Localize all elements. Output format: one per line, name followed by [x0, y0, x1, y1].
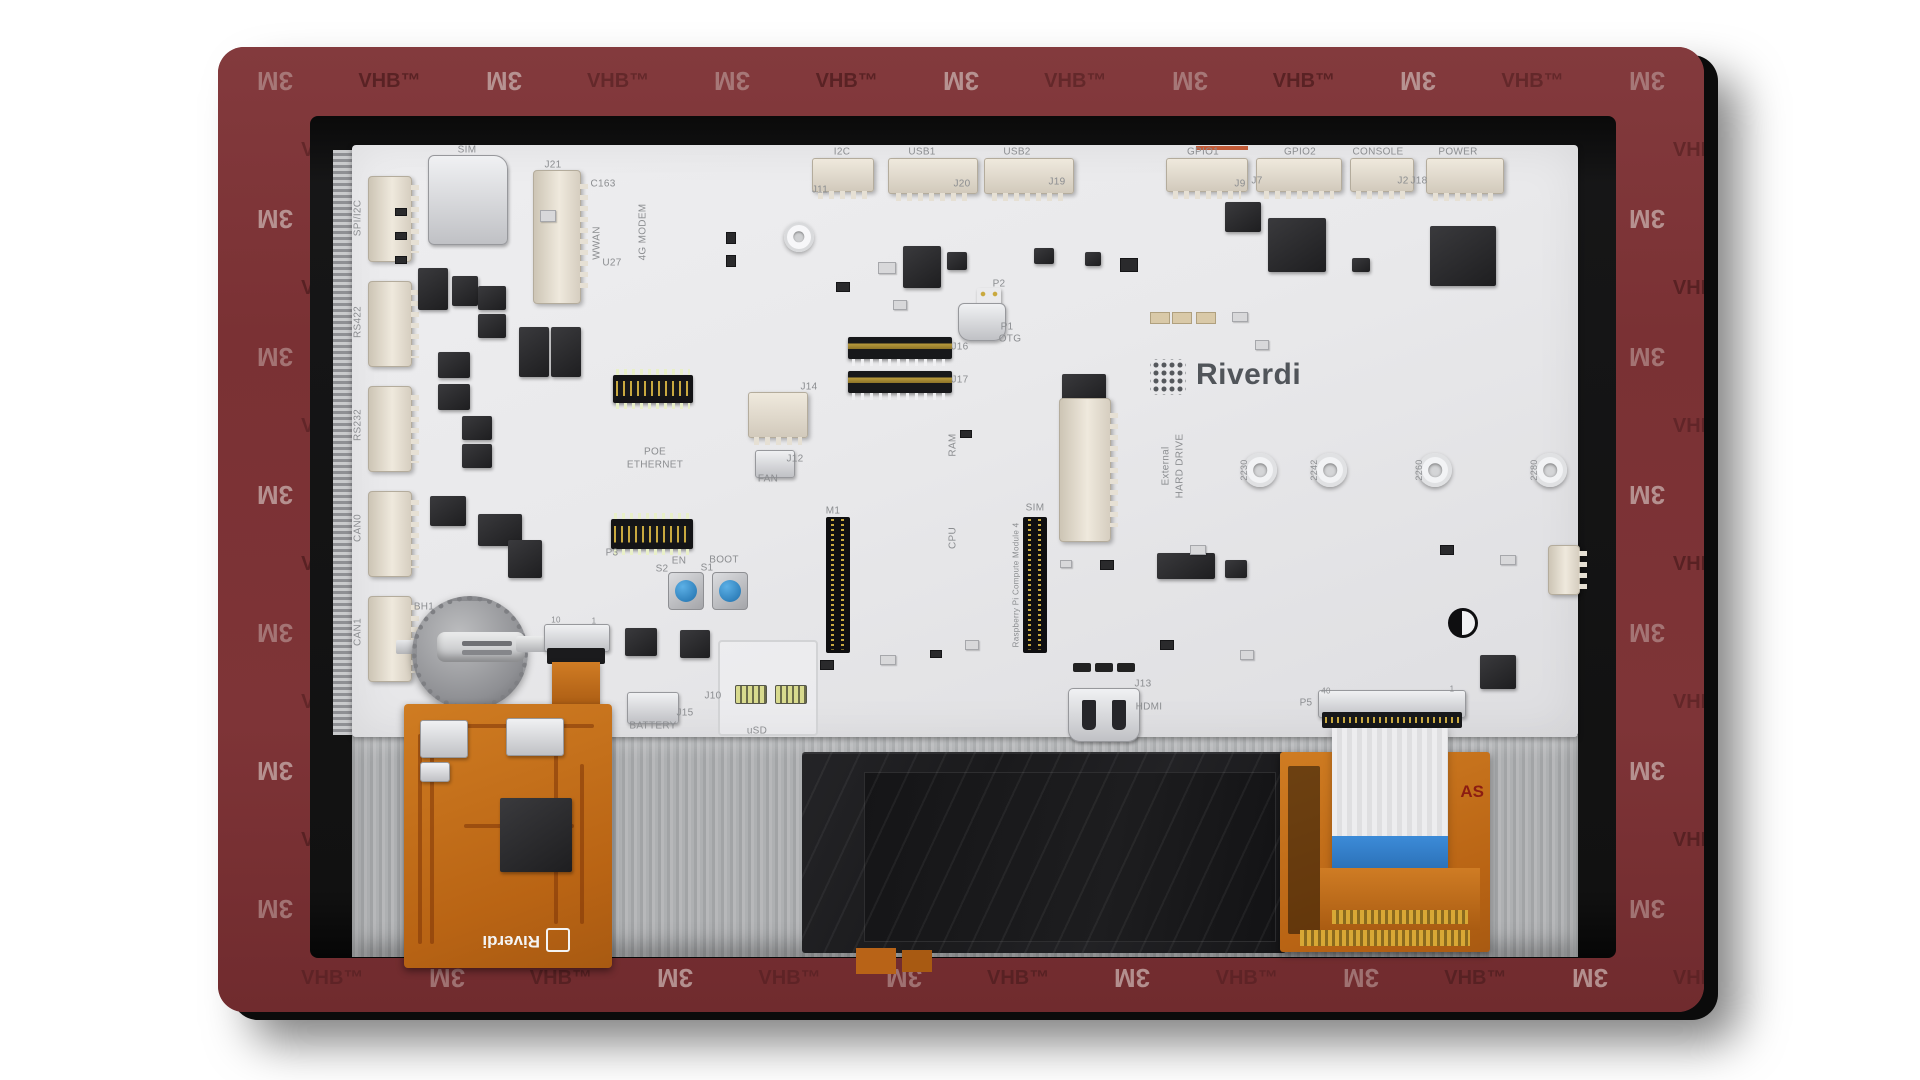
- silkscreen-label: HARD DRIVE: [1175, 434, 1186, 499]
- flex-riverdi-logo-text: Riverdi: [482, 931, 540, 951]
- flex-connector: [420, 720, 468, 758]
- silkscreen-label: 2242: [1310, 459, 1320, 480]
- silkscreen-label: CONSOLE: [1352, 147, 1403, 158]
- gold-finger-contacts: [1300, 930, 1470, 946]
- silkscreen-label: RAM: [948, 433, 959, 456]
- flex-marking-text: AS: [1460, 782, 1484, 802]
- silkscreen-label: C163: [590, 179, 615, 190]
- silkscreen-label: ETHERNET: [627, 460, 683, 471]
- silkscreen-label: 10: [551, 617, 561, 626]
- flex-tab: [856, 948, 896, 974]
- silkscreen-label: POWER: [1438, 147, 1477, 158]
- silkscreen-label: USB1: [908, 147, 935, 158]
- display-back-tape: [802, 752, 1286, 953]
- silkscreen-label: uSD: [747, 726, 767, 737]
- silkscreen-label: 40: [1321, 688, 1331, 697]
- silkscreen-label: RS232: [353, 409, 364, 441]
- silkscreen-label: J19: [1048, 177, 1065, 188]
- silkscreen-label: I2C: [834, 147, 850, 158]
- silkscreen-label: J15: [676, 708, 693, 719]
- silkscreen-label: J20: [953, 179, 970, 190]
- silkscreen-label: J16: [951, 342, 968, 353]
- ribbon-flex-end: [1320, 868, 1480, 930]
- silkscreen-label: Raspberry Pi Compute Module 4: [1013, 523, 1022, 648]
- tape-wrinkles: [802, 752, 1286, 953]
- silkscreen-label: 1: [1450, 686, 1455, 695]
- silkscreen-label: CPU: [948, 527, 959, 549]
- ribbon-gold-fingers: [1332, 910, 1468, 924]
- silkscreen-label: GPIO1: [1187, 147, 1219, 158]
- silkscreen-label: OTG: [999, 334, 1022, 345]
- silkscreen-label: J12: [786, 454, 803, 465]
- display-module-device: 3MVHB™3MVHB™3MVHB™3MVHB™3MVHB™3MVHB™3MVH…: [218, 47, 1704, 1012]
- silkscreen-label: BH1: [414, 602, 434, 613]
- silkscreen-label: J10: [704, 691, 721, 702]
- silkscreen-label: J17: [951, 375, 968, 386]
- silkscreen-label: GPIO2: [1284, 147, 1316, 158]
- silkscreen-label: 4G MODEM: [638, 204, 649, 261]
- silkscreen-label: M1: [826, 506, 841, 517]
- flex-riverdi-logo: Riverdi: [440, 922, 570, 954]
- silkscreen-label: J21: [544, 160, 561, 171]
- silkscreen-label: S1: [701, 563, 714, 574]
- device-inner: Riverdi: [0, 0, 1920, 1080]
- silkscreen-label: S2: [656, 564, 669, 575]
- silkscreen-label: J13: [1134, 679, 1151, 690]
- flex-tab: [902, 950, 932, 972]
- silkscreen-label: BATTERY: [629, 721, 676, 732]
- silkscreen-label: External: [1161, 446, 1172, 485]
- silkscreen-label: P3: [606, 548, 619, 559]
- silkscreen-label: CAN1: [353, 618, 364, 646]
- flex-shadow-area: [1288, 766, 1320, 934]
- silkscreen-label: J18: [1410, 176, 1427, 187]
- silkscreen-label: J14: [800, 382, 817, 393]
- touch-controller-chip: [500, 798, 572, 872]
- silkscreen-label: USB2: [1003, 147, 1030, 158]
- silkscreen-label: J7: [1251, 176, 1262, 187]
- touch-controller-flex-board: Riverdi: [404, 704, 612, 968]
- flex-riverdi-logo-mark: [546, 928, 570, 952]
- silkscreen-label: CAN0: [353, 514, 364, 542]
- silkscreen-label: SIM: [1026, 503, 1045, 514]
- silkscreen-label: WWAN: [592, 226, 603, 260]
- silkscreen-label: HDMI: [1136, 702, 1163, 713]
- silkscreen-label: U27: [602, 258, 621, 269]
- silkscreen-label: P2: [993, 279, 1006, 290]
- silkscreen-label: J9: [1234, 179, 1245, 190]
- flex-connector: [506, 718, 564, 756]
- silkscreen-label: BOOT: [709, 555, 739, 566]
- silkscreen-label: 2260: [1415, 459, 1425, 480]
- silkscreen-label: P1: [1001, 322, 1014, 333]
- silkscreen-label: J2: [1397, 176, 1408, 187]
- flex-connector: [420, 762, 450, 782]
- ribbon-blue-stiffener: [1332, 836, 1448, 872]
- silkscreen-label: EN: [672, 556, 687, 567]
- silkscreen-label: 2280: [1530, 459, 1540, 480]
- silkscreen-label: 1: [592, 618, 597, 627]
- silkscreen-label: FAN: [758, 474, 778, 485]
- silkscreen-label: POE: [644, 447, 666, 458]
- silkscreen-label: 2230: [1240, 459, 1250, 480]
- silkscreen-label: RS422: [353, 306, 364, 338]
- silkscreen-label: P5: [1300, 698, 1313, 709]
- silkscreen-label: SIM: [458, 145, 477, 156]
- silkscreen-label: SPI/I2C: [353, 200, 364, 237]
- silkscreen-label: J11: [812, 185, 828, 196]
